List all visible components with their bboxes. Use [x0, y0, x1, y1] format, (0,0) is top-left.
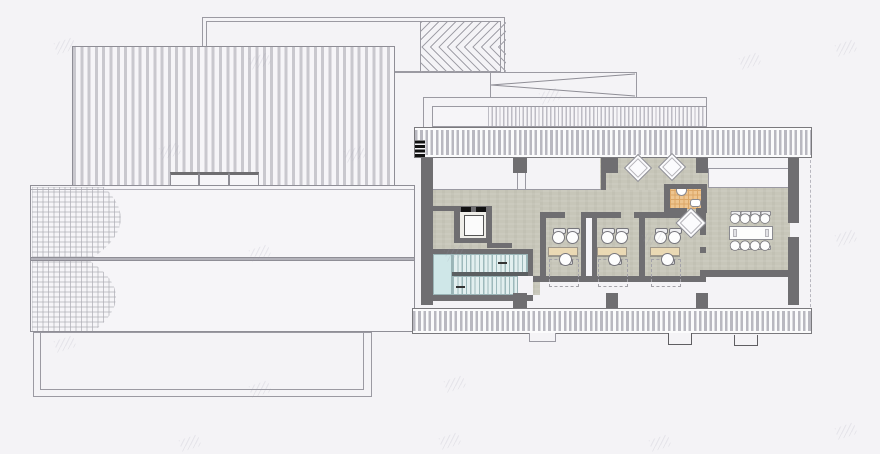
diamond-table-2: [658, 153, 686, 181]
watermark-mark-13: [249, 380, 272, 398]
office-chair-top-1-2: [565, 228, 579, 243]
diamond-table-1: [624, 154, 652, 182]
chair-seat: [661, 253, 674, 266]
conference-chair-bottom-4: [759, 238, 770, 250]
watermark-mark-2: [249, 52, 272, 70]
watermark-mark-18: [835, 422, 858, 440]
watermark-mark-4: [344, 145, 367, 163]
watermark-mark-8: [249, 244, 272, 262]
foundation-tab-3: [734, 335, 758, 346]
facade-pier-top-3: [696, 158, 708, 173]
watermark-mark-3: [159, 142, 182, 160]
watermark-mark-16: [439, 432, 462, 450]
office-chair-top-2-1: [600, 228, 614, 243]
ladder-icon: [415, 140, 425, 157]
facade-pier-top-2: [605, 158, 618, 173]
diamond-table-inner: [662, 157, 682, 177]
watermark-mark-11: [835, 229, 858, 247]
chair-seat: [608, 253, 621, 266]
facade-pier-bottom-1: [513, 293, 527, 308]
chair-seat: [559, 253, 572, 266]
watermark-mark-6: [739, 52, 762, 70]
watermark-mark-7: [835, 39, 858, 57]
foundation-tab-1: [529, 333, 556, 342]
chair-seat: [566, 231, 579, 244]
chair-seat: [760, 213, 770, 223]
watermark-mark-12: [54, 335, 77, 353]
watermark-mark-15: [179, 434, 202, 452]
facade-pier-bottom-2: [606, 293, 618, 308]
watermark-mark-17: [649, 434, 672, 452]
office-chair-top-3-2: [667, 228, 681, 243]
watermark-mark-5: [539, 87, 562, 105]
office-chair-bottom-3: [660, 250, 674, 265]
chair-seat: [668, 231, 681, 244]
chair-seat: [615, 231, 628, 244]
facade-pier-top-1: [513, 158, 527, 173]
facade-pier-bottom-3: [696, 293, 708, 308]
conference-chair-top-4: [759, 211, 770, 223]
furniture-layer: [0, 0, 880, 454]
watermark-mark-10: [642, 229, 665, 247]
watermark-mark-9: [444, 244, 467, 262]
chair-seat: [760, 240, 770, 250]
watermark-mark-14: [444, 375, 467, 393]
office-chair-top-1-1: [551, 228, 565, 243]
roof-edge-dashed-line: [810, 160, 811, 307]
plan-sheet: [0, 0, 880, 454]
chair-seat: [552, 231, 565, 244]
diamond-table-inner: [628, 158, 648, 178]
chair-seat: [601, 231, 614, 244]
foundation-tab-2: [668, 333, 692, 345]
office-chair-bottom-2: [607, 250, 621, 265]
watermark-mark-1: [54, 37, 77, 55]
diamond-table-inner: [680, 212, 703, 235]
office-chair-top-2-2: [614, 228, 628, 243]
office-chair-bottom-1: [558, 250, 572, 265]
